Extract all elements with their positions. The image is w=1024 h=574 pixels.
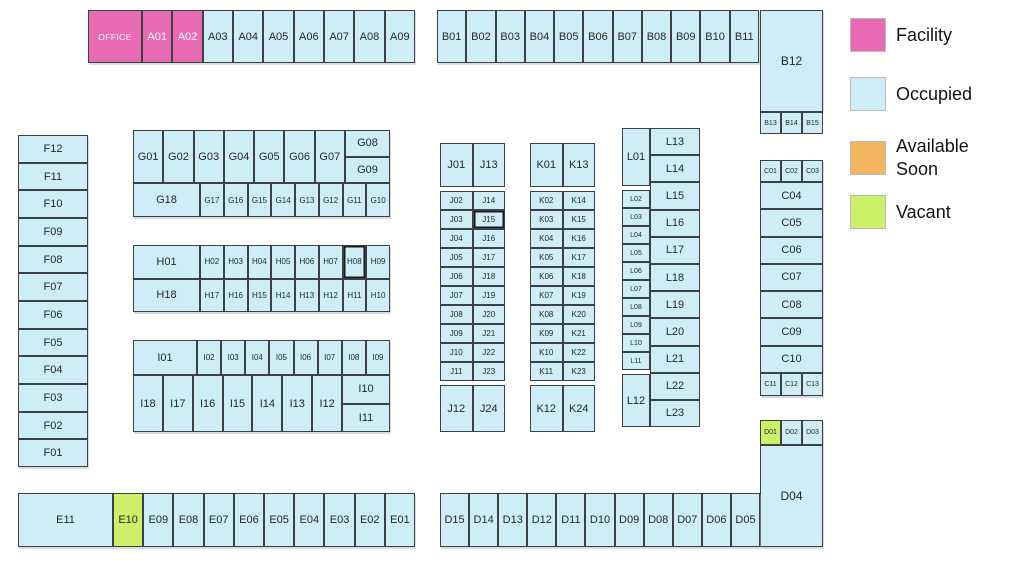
unit-h10[interactable]: H10	[366, 279, 390, 313]
vacant-swatch	[850, 195, 886, 229]
unit-h12[interactable]: H12	[319, 279, 343, 313]
unit-c03[interactable]: C03	[802, 160, 823, 182]
unit-k18[interactable]: K18	[563, 267, 596, 286]
unit-f10[interactable]: F10	[18, 190, 88, 218]
unit-i05[interactable]: I05	[269, 340, 293, 375]
unit-c12[interactable]: C12	[781, 373, 802, 396]
unit-g13[interactable]: G13	[295, 183, 319, 217]
unit-a04[interactable]: A04	[233, 10, 263, 63]
unit-i16[interactable]: I16	[193, 375, 223, 432]
unit-d09[interactable]: D09	[615, 493, 644, 547]
unit-l14[interactable]: L14	[650, 155, 700, 182]
unit-h13[interactable]: H13	[295, 279, 319, 313]
unit-g16[interactable]: G16	[224, 183, 248, 217]
legend-item-occupied: Occupied	[850, 77, 996, 111]
i-top-row: I01 I02I03I04I05I06I07I08I09	[133, 340, 390, 375]
unit-l09[interactable]: L09	[622, 316, 650, 334]
unit-k08[interactable]: K08	[530, 305, 563, 324]
c-mid-col: C04C05C06C07C08C09C10	[760, 182, 823, 373]
unit-d12[interactable]: D12	[527, 493, 556, 547]
unit-l15[interactable]: L15	[650, 182, 700, 209]
unit-c02[interactable]: C02	[781, 160, 802, 182]
unit-d01[interactable]: D01	[760, 420, 781, 445]
unit-i12[interactable]: I12	[312, 375, 342, 432]
block-c: C01C02C03 C04C05C06C07C08C09C10 C11C12C1…	[760, 160, 823, 396]
unit-l19[interactable]: L19	[650, 291, 700, 318]
unit-g02[interactable]: G02	[163, 130, 193, 183]
legend-item-available-soon: Available Soon	[850, 135, 996, 180]
unit-g12[interactable]: G12	[319, 183, 343, 217]
unit-l18[interactable]: L18	[650, 264, 700, 291]
unit-c07[interactable]: C07	[760, 264, 823, 291]
unit-i07[interactable]: I07	[318, 340, 342, 375]
block-d-top: D01D02D03	[760, 420, 823, 445]
unit-j12[interactable]: J12	[440, 385, 473, 432]
unit-k20[interactable]: K20	[563, 305, 596, 324]
l-right-col: L13L14L15L16L17L18L19L20L21L22L23	[650, 128, 700, 427]
unit-h14[interactable]: H14	[271, 279, 295, 313]
unit-g03[interactable]: G03	[194, 130, 224, 183]
unit-d02[interactable]: D02	[781, 420, 802, 445]
unit-k02[interactable]: K02	[530, 191, 563, 210]
block-l: L01 L02L03L04L05L06L07L08L09L10L11 L12 L…	[622, 128, 700, 427]
unit-d08[interactable]: D08	[644, 493, 673, 547]
unit-f04[interactable]: F04	[18, 356, 88, 384]
unit-j19[interactable]: J19	[473, 286, 506, 305]
unit-j22[interactable]: J22	[473, 343, 506, 362]
unit-j01[interactable]: J01	[440, 143, 473, 187]
i-bottom-row: I18I17I16I15I14I13I12 I10 I11	[133, 375, 390, 432]
unit-k12[interactable]: K12	[530, 385, 563, 432]
unit-k24[interactable]: K24	[563, 385, 596, 432]
unit-c09[interactable]: C09	[760, 318, 823, 345]
unit-d05[interactable]: D05	[731, 493, 760, 547]
unit-l05[interactable]: L05	[622, 244, 650, 262]
unit-k07[interactable]: K07	[530, 286, 563, 305]
unit-a01[interactable]: A01	[142, 10, 172, 63]
unit-j17[interactable]: J17	[473, 248, 506, 267]
unit-l03[interactable]: L03	[622, 208, 650, 226]
unit-f07[interactable]: F07	[18, 273, 88, 301]
unit-j16[interactable]: J16	[473, 229, 506, 248]
unit-f01[interactable]: F01	[18, 439, 88, 467]
h-row-1: H01 H02H03H04H05H06H07H08H09	[133, 245, 390, 279]
unit-g10[interactable]: G10	[366, 183, 390, 217]
unit-k05[interactable]: K05	[530, 248, 563, 267]
unit-i14[interactable]: I14	[252, 375, 282, 432]
unit-g08[interactable]: G08	[345, 130, 390, 157]
unit-i08[interactable]: I08	[342, 340, 366, 375]
unit-b02[interactable]: B02	[466, 10, 495, 63]
unit-i06[interactable]: I06	[294, 340, 318, 375]
unit-b08[interactable]: B08	[642, 10, 671, 63]
block-d04: D04	[760, 445, 823, 547]
legend-item-vacant: Vacant	[850, 195, 996, 229]
unit-i04[interactable]: I04	[245, 340, 269, 375]
unit-k03[interactable]: K03	[530, 210, 563, 229]
unit-l21[interactable]: L21	[650, 346, 700, 373]
block-j: J01 J02J03J04J05J06J07J08J09J10J11 J12 J…	[440, 143, 505, 432]
unit-i17[interactable]: I17	[163, 375, 193, 432]
unit-l06[interactable]: L06	[622, 262, 650, 280]
unit-j07[interactable]: J07	[440, 286, 473, 305]
unit-l02[interactable]: L02	[622, 190, 650, 208]
unit-b15[interactable]: B15	[802, 112, 823, 134]
unit-g01[interactable]: G01	[133, 130, 163, 183]
unit-a09[interactable]: A09	[385, 10, 415, 63]
unit-b07[interactable]: B07	[613, 10, 642, 63]
unit-k19[interactable]: K19	[563, 286, 596, 305]
unit-j05[interactable]: J05	[440, 248, 473, 267]
unit-l23[interactable]: L23	[650, 400, 700, 427]
unit-k11[interactable]: K11	[530, 362, 563, 381]
unit-l16[interactable]: L16	[650, 210, 700, 237]
g-top-row: G01G02G03G04G05G06G07 G08 G09	[133, 130, 390, 183]
unit-j09[interactable]: J09	[440, 324, 473, 343]
unit-k13[interactable]: K13	[563, 143, 596, 187]
unit-k01[interactable]: K01	[530, 143, 563, 187]
unit-h16[interactable]: H16	[224, 279, 248, 313]
unit-j02[interactable]: J02	[440, 191, 473, 210]
unit-l07[interactable]: L07	[622, 280, 650, 298]
unit-e11[interactable]: E11	[18, 493, 113, 547]
unit-l12[interactable]: L12	[622, 374, 650, 427]
unit-h01[interactable]: H01	[133, 245, 200, 279]
unit-f11[interactable]: F11	[18, 163, 88, 191]
l-left-col: L01 L02L03L04L05L06L07L08L09L10L11 L12	[622, 128, 650, 427]
unit-l20[interactable]: L20	[650, 318, 700, 345]
unit-h05[interactable]: H05	[271, 245, 295, 279]
unit-b01[interactable]: B01	[437, 10, 466, 63]
unit-e10[interactable]: E10	[113, 493, 143, 547]
unit-d14[interactable]: D14	[469, 493, 498, 547]
unit-i13[interactable]: I13	[282, 375, 312, 432]
unit-g14[interactable]: G14	[271, 183, 295, 217]
block-b-small: B13B14B15	[760, 112, 823, 134]
unit-i15[interactable]: I15	[223, 375, 253, 432]
unit-i10[interactable]: I10	[342, 375, 390, 404]
unit-a08[interactable]: A08	[354, 10, 384, 63]
block-k: K01 K02K03K04K05K06K07K08K09K10K11 K12 K…	[530, 143, 595, 432]
k-col-2: K13 K14K15K16K17K18K19K20K21K22K23 K24	[563, 143, 596, 432]
unit-c13[interactable]: C13	[802, 373, 823, 396]
unit-i18[interactable]: I18	[133, 375, 163, 432]
unit-e01[interactable]: E01	[385, 493, 415, 547]
unit-e09[interactable]: E09	[143, 493, 173, 547]
unit-k17[interactable]: K17	[563, 248, 596, 267]
unit-j14[interactable]: J14	[473, 191, 506, 210]
unit-f03[interactable]: F03	[18, 384, 88, 412]
unit-k04[interactable]: K04	[530, 229, 563, 248]
unit-k22[interactable]: K22	[563, 343, 596, 362]
block-e: E11 E10E09E08E07E06E05E04E03E02E01	[18, 493, 415, 547]
block-h: H01 H02H03H04H05H06H07H08H09 H18 H17H16H…	[133, 245, 390, 312]
legend-label-available-soon: Available Soon	[896, 135, 996, 180]
unit-j24[interactable]: J24	[473, 385, 506, 432]
unit-g05[interactable]: G05	[254, 130, 284, 183]
unit-a07[interactable]: A07	[324, 10, 354, 63]
unit-g04[interactable]: G04	[224, 130, 254, 183]
block-f: F12F11F10F09F08F07F06F05F04F03F02F01	[18, 135, 88, 467]
unit-b14[interactable]: B14	[781, 112, 802, 134]
legend-label-facility: Facility	[896, 24, 996, 47]
unit-j18[interactable]: J18	[473, 267, 506, 286]
k-col-1: K01 K02K03K04K05K06K07K08K09K10K11 K12	[530, 143, 563, 432]
unit-k14[interactable]: K14	[563, 191, 596, 210]
unit-g07[interactable]: G07	[315, 130, 345, 183]
floor-plan: OFFICE A01A02A03A04A05A06A07A08A09 B01B0…	[0, 0, 1024, 574]
unit-g11[interactable]: G11	[343, 183, 367, 217]
unit-f05[interactable]: F05	[18, 329, 88, 357]
unit-f02[interactable]: F02	[18, 412, 88, 440]
unit-e06[interactable]: E06	[234, 493, 264, 547]
unit-c04[interactable]: C04	[760, 182, 823, 209]
unit-l01[interactable]: L01	[622, 128, 650, 186]
unit-j15[interactable]: J15	[473, 210, 506, 229]
unit-j23[interactable]: J23	[473, 362, 506, 381]
unit-j21[interactable]: J21	[473, 324, 506, 343]
unit-b03[interactable]: B03	[496, 10, 525, 63]
unit-g09[interactable]: G09	[345, 157, 390, 184]
j-col-2: J13 J14J15J16J17J18J19J20J21J22J23 J24	[473, 143, 506, 432]
unit-e03[interactable]: E03	[324, 493, 354, 547]
unit-j10[interactable]: J10	[440, 343, 473, 362]
block-g: G01G02G03G04G05G06G07 G08 G09 G18 G17G16…	[133, 130, 390, 217]
unit-d03[interactable]: D03	[802, 420, 823, 445]
unit-a05[interactable]: A05	[263, 10, 293, 63]
occupied-swatch	[850, 77, 886, 111]
unit-b06[interactable]: B06	[583, 10, 612, 63]
legend: Facility Occupied Available Soon Vacant	[850, 18, 1024, 238]
block-d-row: D15D14D13D12D11D10D09D08D07D06D05	[440, 493, 760, 547]
unit-i02[interactable]: I02	[197, 340, 221, 375]
unit-b04[interactable]: B04	[525, 10, 554, 63]
unit-c01[interactable]: C01	[760, 160, 781, 182]
unit-h03[interactable]: H03	[224, 245, 248, 279]
unit-c05[interactable]: C05	[760, 209, 823, 236]
block-a: OFFICE A01A02A03A04A05A06A07A08A09	[88, 10, 415, 63]
unit-k21[interactable]: K21	[563, 324, 596, 343]
unit-g15[interactable]: G15	[248, 183, 272, 217]
unit-d10[interactable]: D10	[585, 493, 614, 547]
unit-a03[interactable]: A03	[203, 10, 233, 63]
unit-i11[interactable]: I11	[342, 404, 390, 433]
j-col-1: J01 J02J03J04J05J06J07J08J09J10J11 J12	[440, 143, 473, 432]
unit-b09[interactable]: B09	[671, 10, 700, 63]
unit-e04[interactable]: E04	[294, 493, 324, 547]
unit-a06[interactable]: A06	[294, 10, 324, 63]
unit-b10[interactable]: B10	[700, 10, 729, 63]
unit-c10[interactable]: C10	[760, 346, 823, 373]
unit-j08[interactable]: J08	[440, 305, 473, 324]
unit-i01[interactable]: I01	[133, 340, 197, 375]
unit-e02[interactable]: E02	[355, 493, 385, 547]
i-pair: I10 I11	[342, 375, 390, 432]
unit-j04[interactable]: J04	[440, 229, 473, 248]
g-pair: G08 G09	[345, 130, 390, 183]
unit-d15[interactable]: D15	[440, 493, 469, 547]
unit-h04[interactable]: H04	[248, 245, 272, 279]
legend-label-occupied: Occupied	[896, 83, 996, 106]
unit-d06[interactable]: D06	[702, 493, 731, 547]
unit-b12[interactable]: B12	[760, 10, 823, 112]
unit-h17[interactable]: H17	[200, 279, 224, 313]
unit-c11[interactable]: C11	[760, 373, 781, 396]
unit-l11[interactable]: L11	[622, 352, 650, 370]
unit-j11[interactable]: J11	[440, 362, 473, 381]
unit-k16[interactable]: K16	[563, 229, 596, 248]
unit-l13[interactable]: L13	[650, 128, 700, 155]
unit-b05[interactable]: B05	[554, 10, 583, 63]
unit-j06[interactable]: J06	[440, 267, 473, 286]
unit-h08[interactable]: H08	[343, 245, 367, 279]
unit-l10[interactable]: L10	[622, 334, 650, 352]
unit-k06[interactable]: K06	[530, 267, 563, 286]
available-soon-swatch	[850, 141, 886, 175]
unit-f08[interactable]: F08	[18, 246, 88, 274]
unit-b11[interactable]: B11	[730, 10, 759, 63]
unit-a02[interactable]: A02	[172, 10, 202, 63]
block-i: I01 I02I03I04I05I06I07I08I09 I18I17I16I1…	[133, 340, 390, 432]
unit-j03[interactable]: J03	[440, 210, 473, 229]
unit-f12[interactable]: F12	[18, 135, 88, 163]
unit-d11[interactable]: D11	[556, 493, 585, 547]
unit-j13[interactable]: J13	[473, 143, 506, 187]
unit-l17[interactable]: L17	[650, 237, 700, 264]
unit-e08[interactable]: E08	[173, 493, 203, 547]
unit-d07[interactable]: D07	[673, 493, 702, 547]
unit-h15[interactable]: H15	[248, 279, 272, 313]
unit-c08[interactable]: C08	[760, 291, 823, 318]
unit-l22[interactable]: L22	[650, 373, 700, 400]
facility-swatch	[850, 18, 886, 52]
unit-e05[interactable]: E05	[264, 493, 294, 547]
unit-g06[interactable]: G06	[284, 130, 314, 183]
unit-j20[interactable]: J20	[473, 305, 506, 324]
unit-f06[interactable]: F06	[18, 301, 88, 329]
legend-item-facility: Facility	[850, 18, 996, 52]
unit-e07[interactable]: E07	[204, 493, 234, 547]
unit-h18[interactable]: H18	[133, 279, 200, 313]
c-top-row: C01C02C03	[760, 160, 823, 182]
unit-k10[interactable]: K10	[530, 343, 563, 362]
c-bottom-row: C11C12C13	[760, 373, 823, 396]
unit-h11[interactable]: H11	[343, 279, 367, 313]
unit-h02[interactable]: H02	[200, 245, 224, 279]
unit-g17[interactable]: G17	[200, 183, 224, 217]
unit-k23[interactable]: K23	[563, 362, 596, 381]
unit-h09[interactable]: H09	[366, 245, 390, 279]
unit-k15[interactable]: K15	[563, 210, 596, 229]
unit-c06[interactable]: C06	[760, 237, 823, 264]
block-b: B01B02B03B04B05B06B07B08B09B10B11	[437, 10, 759, 63]
unit-i03[interactable]: I03	[221, 340, 245, 375]
unit-l04[interactable]: L04	[622, 226, 650, 244]
unit-i09[interactable]: I09	[366, 340, 390, 375]
unit-l08[interactable]: L08	[622, 298, 650, 316]
unit-h07[interactable]: H07	[319, 245, 343, 279]
unit-d04[interactable]: D04	[760, 445, 823, 547]
unit-d13[interactable]: D13	[498, 493, 527, 547]
unit-office[interactable]: OFFICE	[88, 10, 142, 63]
unit-h06[interactable]: H06	[295, 245, 319, 279]
g-bottom-row: G18 G17G16G15G14G13G12G11G10	[133, 183, 390, 217]
legend-label-vacant: Vacant	[896, 201, 996, 224]
unit-b13[interactable]: B13	[760, 112, 781, 134]
block-b12: B12	[760, 10, 823, 112]
unit-f09[interactable]: F09	[18, 218, 88, 246]
unit-k09[interactable]: K09	[530, 324, 563, 343]
unit-g18[interactable]: G18	[133, 183, 200, 217]
h-row-2: H18 H17H16H15H14H13H12H11H10	[133, 279, 390, 313]
